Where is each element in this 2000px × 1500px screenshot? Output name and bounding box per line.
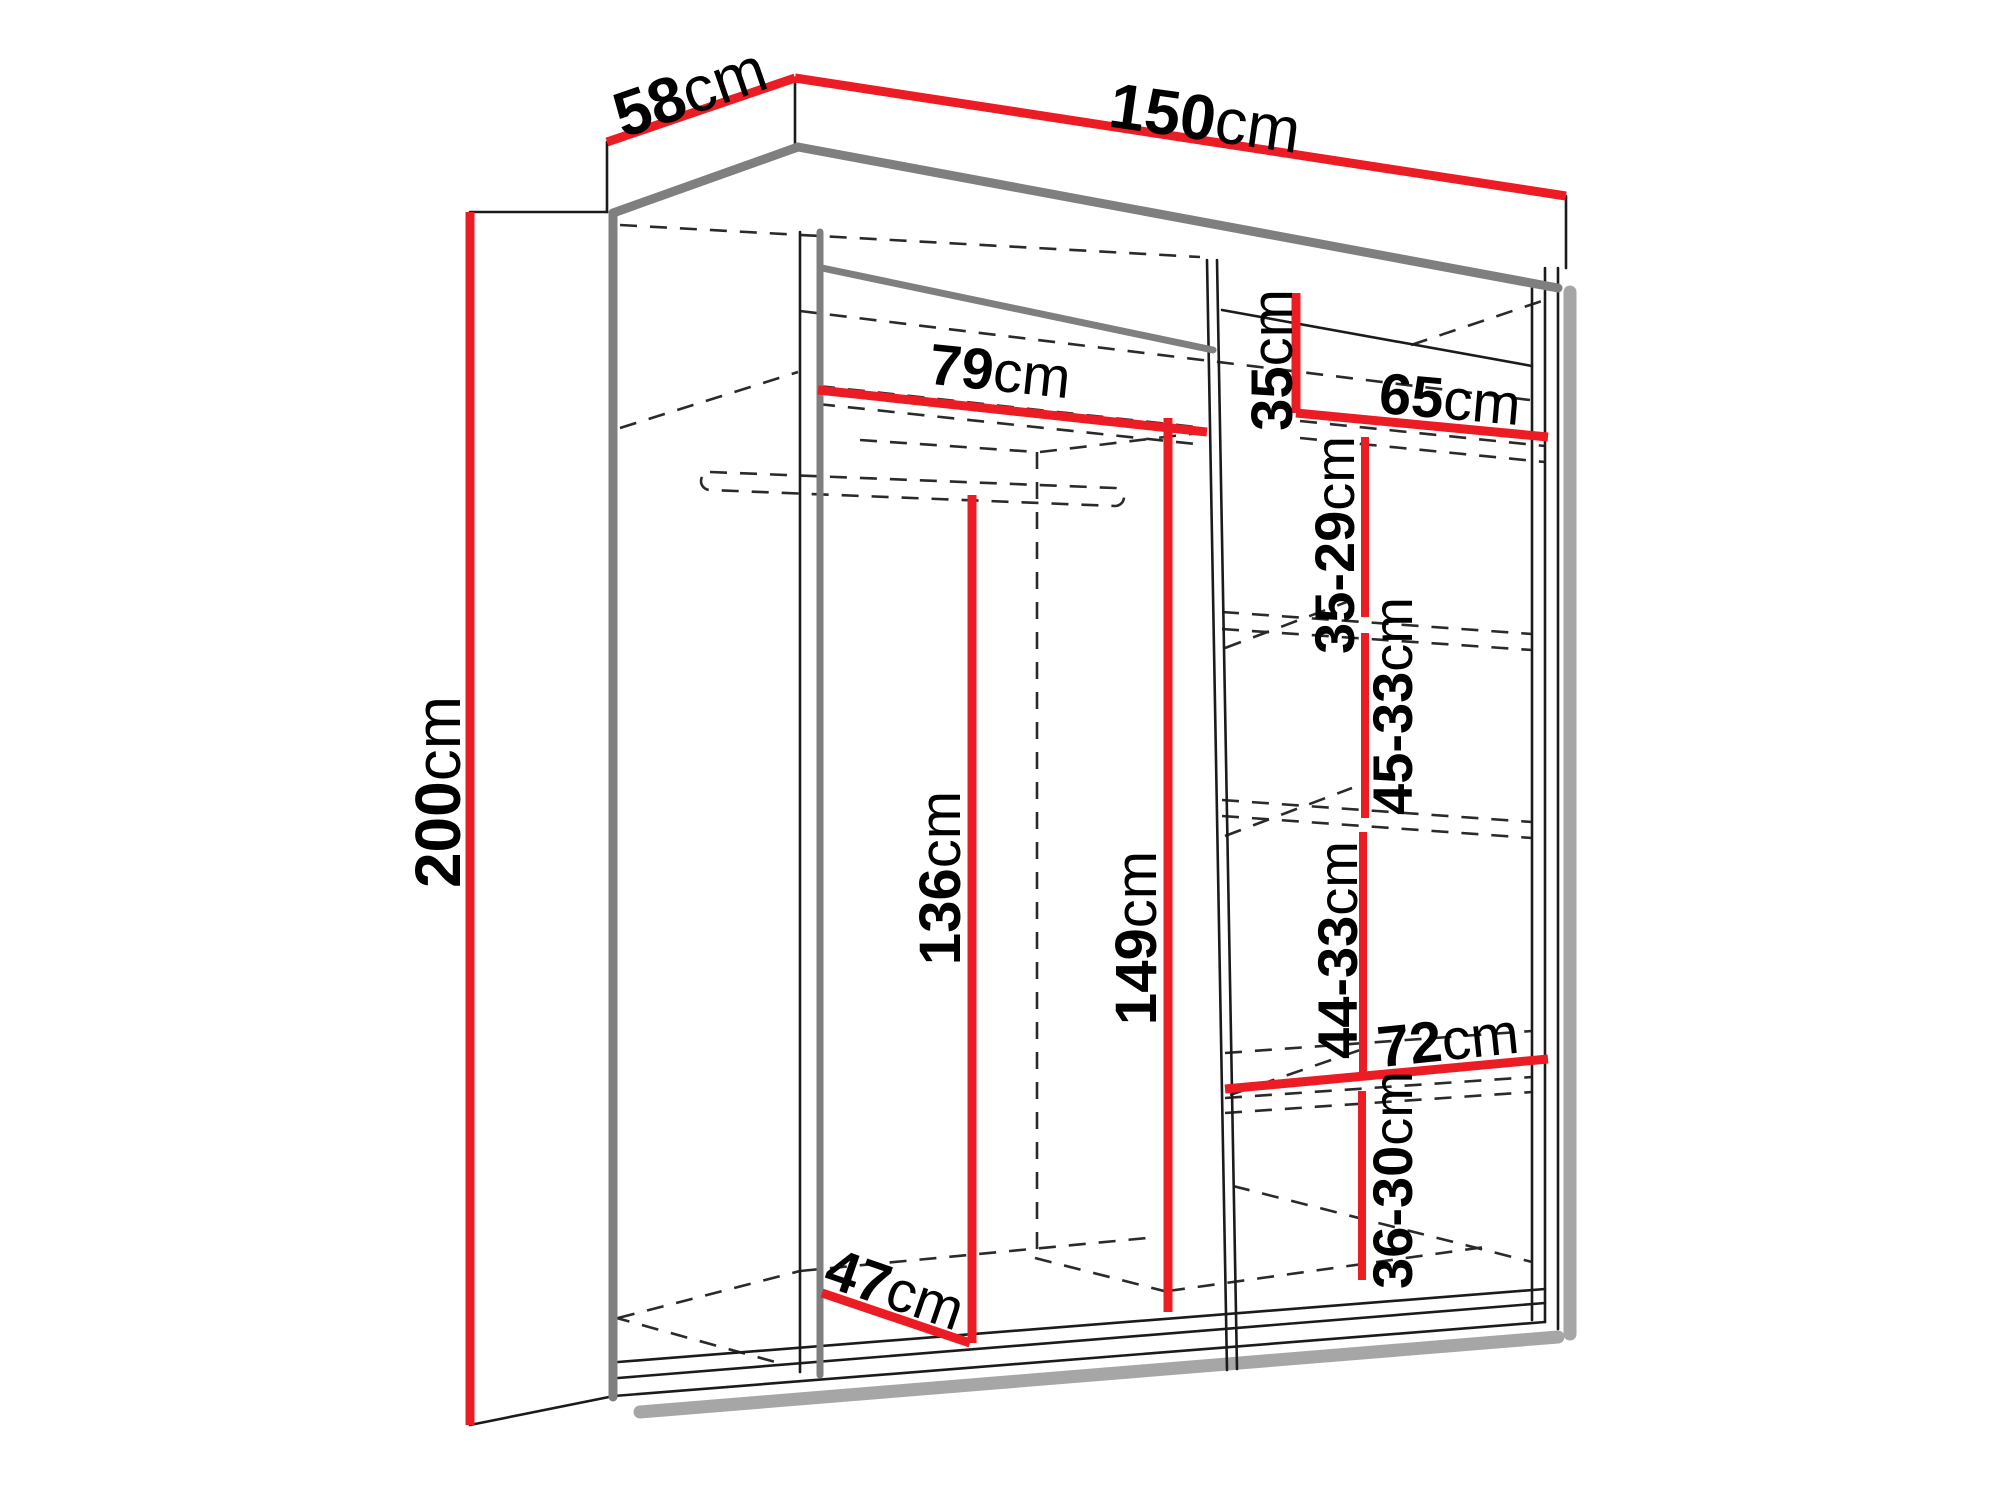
crown-underside-front (798, 147, 1558, 288)
crown-underside-left (613, 147, 798, 213)
dim-label-45-33: 45-33cm (1361, 597, 1424, 815)
hanging-rail (701, 472, 1124, 506)
dim-label-136: 136cm (908, 791, 973, 965)
plinth-mid-line (618, 1303, 1545, 1378)
dim-label-35: 35cm (1240, 289, 1305, 431)
dim-label-58: 58cm (604, 32, 775, 151)
dim-label-35-29: 35-29cm (1303, 436, 1366, 654)
dim-label-79: 79cm (926, 331, 1074, 410)
bottom-front-edge (614, 1322, 1545, 1396)
dim-label-200: 200cm (402, 696, 474, 888)
dimension-labels: 58cm 150cm 200cm 79cm 35cm 65cm 35-29cm … (402, 32, 1523, 1342)
dim-label-44-33: 44-33cm (1306, 841, 1369, 1059)
divider-front-edge-2 (1217, 260, 1237, 1369)
dim-label-47: 47cm (817, 1235, 972, 1343)
dim-label-36-30: 36-30cm (1361, 1071, 1424, 1289)
wardrobe-dimension-diagram: 58cm 150cm 200cm 79cm 35cm 65cm 35-29cm … (0, 0, 2000, 1500)
side-panel-bottom-edge (470, 1396, 614, 1425)
dim-label-149: 149cm (1104, 851, 1169, 1025)
dim-label-150: 150cm (1105, 69, 1305, 167)
dim-label-65: 65cm (1377, 360, 1524, 437)
